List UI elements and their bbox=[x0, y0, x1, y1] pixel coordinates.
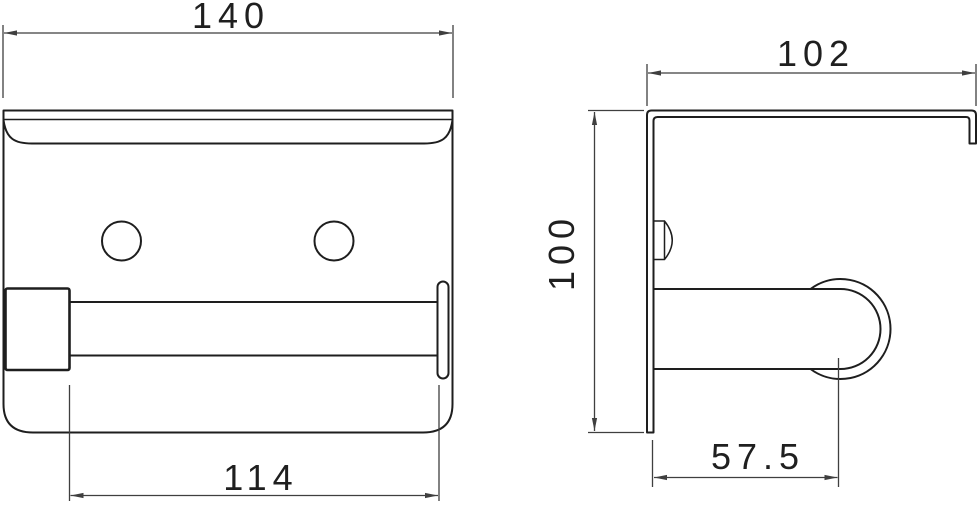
roller-bar-front bbox=[70, 302, 438, 356]
side-view: 102 100 57.5 bbox=[541, 33, 976, 487]
roller-flange-outer-arc bbox=[811, 279, 891, 379]
mounting-hole-left bbox=[102, 222, 141, 261]
dim-114-arrow-left bbox=[71, 493, 84, 498]
dim-100-arrow-bottom bbox=[592, 418, 597, 431]
dim-100-label: 100 bbox=[541, 213, 582, 291]
technical-drawing: 140 114 10 bbox=[0, 0, 980, 509]
dim-140-label: 140 bbox=[192, 0, 270, 36]
dim-114-label: 114 bbox=[223, 457, 298, 498]
dimension-height: 100 bbox=[541, 111, 644, 433]
dimension-roller-length: 114 bbox=[70, 385, 440, 501]
roller-end-flange bbox=[438, 282, 449, 379]
dim-100-extension-lines bbox=[588, 111, 644, 433]
dim-114-arrow-right bbox=[425, 493, 438, 498]
mounting-hole-right bbox=[315, 222, 354, 261]
dim-57-arrow-right bbox=[825, 475, 838, 480]
dim-102-arrow-left bbox=[648, 70, 661, 75]
roller-block bbox=[6, 289, 70, 371]
shelf-lip-curve bbox=[4, 120, 453, 144]
dimension-roller-center-offset: 57.5 bbox=[653, 358, 839, 487]
dimension-depth: 102 bbox=[647, 33, 976, 106]
dim-102-arrow-right bbox=[962, 70, 975, 75]
front-view: 140 114 bbox=[3, 0, 453, 501]
dimension-overall-width: 140 bbox=[3, 0, 453, 98]
dim-57-arrow-left bbox=[654, 475, 667, 480]
dim-100-arrow-top bbox=[592, 112, 597, 125]
roller-bar-side bbox=[654, 289, 841, 369]
roller-end-inner-arc bbox=[841, 289, 881, 369]
side-profile-sheet bbox=[647, 111, 976, 433]
dim-140-arrow-right bbox=[439, 30, 452, 35]
dim-140-arrow-left bbox=[4, 30, 17, 35]
screw-boss bbox=[654, 221, 673, 260]
dim-57-label: 57.5 bbox=[711, 436, 805, 477]
mounting-plate-outline bbox=[4, 111, 453, 433]
dim-102-label: 102 bbox=[777, 33, 855, 74]
drawing-canvas: 140 114 10 bbox=[0, 0, 980, 509]
